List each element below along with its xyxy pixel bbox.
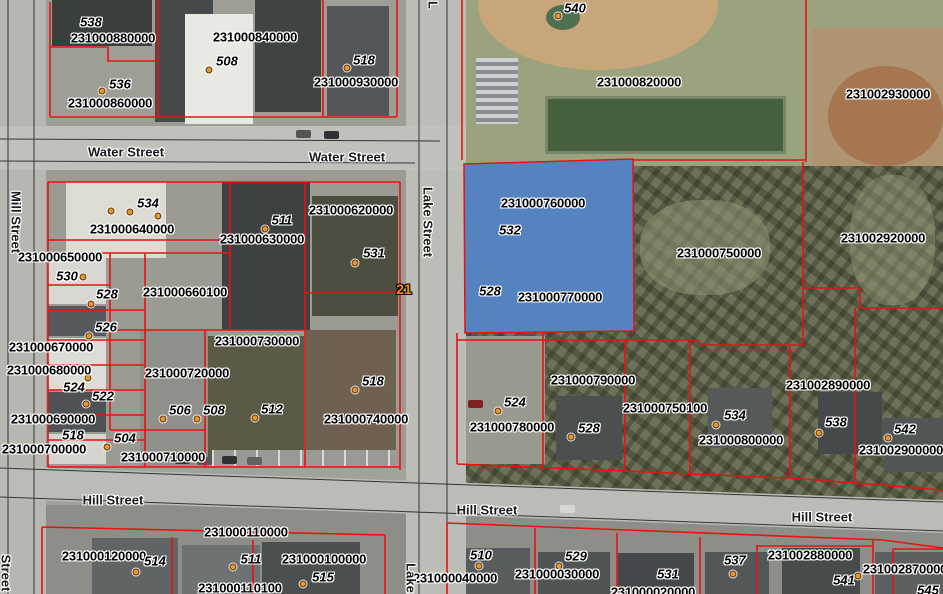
parcel-label-231000100000: 231000100000: [282, 552, 366, 567]
street-label-street: Street: [0, 555, 14, 592]
parcel-label-231000710000: 231000710000: [121, 450, 205, 465]
address-label-506: 506: [169, 403, 191, 418]
parcel-label-231000860000: 231000860000: [68, 96, 152, 111]
parcel-label-231000110000: 231000110000: [204, 525, 288, 540]
parcel-label-231002880000: 231002880000: [768, 548, 852, 563]
parcel-label-231000750100: 231000750100: [623, 401, 707, 416]
parcel-label-231000820000: 231000820000: [597, 75, 681, 90]
address-label-504: 504: [114, 431, 136, 446]
address-label-508: 508: [216, 54, 238, 69]
address-label-524: 524: [504, 395, 526, 410]
parcel-label-231000930000: 231000930000: [314, 75, 398, 90]
parcel-label-231000700000: 231000700000: [2, 442, 86, 457]
parcel-label-231000800000: 231000800000: [699, 433, 783, 448]
parcel-label-231000770000: 231000770000: [518, 290, 602, 305]
address-label-541: 541: [833, 573, 855, 588]
street-label-lake: Lake: [404, 563, 419, 593]
address-label-511: 511: [241, 552, 262, 567]
street-label-water-street: Water Street: [309, 150, 385, 165]
address-label-545: 545: [917, 583, 939, 594]
parcel-label-231000690000: 231000690000: [11, 412, 95, 427]
address-label-538: 538: [825, 415, 847, 430]
parcel-label-231000790000: 231000790000: [551, 373, 635, 388]
parcel-label-231000630000: 231000630000: [220, 232, 304, 247]
address-label-538: 538: [80, 15, 102, 30]
parcel-label-231000640000: 231000640000: [90, 222, 174, 237]
address-label-531: 531: [363, 246, 385, 261]
address-label-512: 512: [261, 402, 283, 417]
parcel-label-231000750000: 231000750000: [677, 246, 761, 261]
address-label-510: 510: [470, 548, 492, 563]
parcel-label-231000740000: 231000740000: [324, 412, 408, 427]
parcel-label-231002870000: 231002870000: [863, 562, 943, 577]
street-label-hill-street: Hill Street: [457, 503, 518, 518]
street-label-l: L: [426, 1, 441, 9]
parcel-label-231000730000: 231000730000: [215, 334, 299, 349]
address-label-528: 528: [479, 284, 501, 299]
address-label-526: 526: [95, 320, 117, 335]
parcel-label-231000030000: 231000030000: [515, 567, 599, 582]
address-label-518: 518: [362, 374, 384, 389]
address-label-531: 531: [657, 567, 679, 582]
address-label-515: 515: [312, 570, 334, 585]
street-label-water-street: Water Street: [88, 145, 164, 160]
parcel-label-231000760000: 231000760000: [501, 196, 585, 211]
address-label-542: 542: [894, 422, 916, 437]
parcel-label-231000720000: 231000720000: [145, 366, 229, 381]
parcel-label-231000620000: 231000620000: [309, 203, 393, 218]
address-label-528: 528: [96, 287, 118, 302]
address-label-536: 536: [109, 77, 131, 92]
parcel-label-231002890000: 231002890000: [786, 378, 870, 393]
address-label-508: 508: [203, 403, 225, 418]
parcel-label-231000660100: 231000660100: [143, 285, 227, 300]
parcel-label-231000880000: 231000880000: [71, 31, 155, 46]
address-label-537: 537: [724, 553, 746, 568]
parcel-label-231000650000: 231000650000: [18, 250, 102, 265]
address-label-534: 534: [137, 196, 159, 211]
address-label-524: 524: [63, 380, 85, 395]
street-label-mill-street: Mill Street: [9, 191, 24, 253]
street-label-hill-street: Hill Street: [792, 510, 853, 525]
address-label-532: 532: [499, 223, 521, 238]
address-label-529: 529: [565, 549, 587, 564]
address-label-518: 518: [62, 428, 84, 443]
address-label-528: 528: [578, 421, 600, 436]
parcel-label-231000780000: 231000780000: [470, 420, 554, 435]
map-canvas[interactable]: 2310008800002310008400002310009300002310…: [0, 0, 943, 594]
parcel-label-231000040000: 231000040000: [413, 571, 497, 586]
parcel-label-231002930000: 231002930000: [846, 87, 930, 102]
address-label-522: 522: [92, 389, 114, 404]
street-label-hill-street: Hill Street: [83, 493, 144, 508]
address-label-530: 530: [56, 269, 78, 284]
parcel-label-231002900000: 231002900000: [859, 443, 943, 458]
parcel-label-231000680000: 231000680000: [7, 363, 91, 378]
parcel-label-231000020000: 231000020000: [611, 585, 695, 594]
route-marker-21: 21: [396, 281, 412, 297]
parcel-label-231000670000: 231000670000: [9, 340, 93, 355]
parcel-label-231002920000: 231002920000: [841, 231, 925, 246]
address-label-518: 518: [353, 53, 375, 68]
address-label-534: 534: [724, 408, 746, 423]
address-label-511: 511: [272, 213, 293, 228]
street-label-lake-street: Lake Street: [421, 187, 436, 257]
parcel-label-231000840000: 231000840000: [213, 30, 297, 45]
address-label-514: 514: [144, 554, 166, 569]
parcel-label-231000110100: 231000110100: [198, 581, 282, 594]
map-label-layer: 2310008800002310008400002310009300002310…: [0, 0, 943, 594]
parcel-label-231000120000: 231000120000: [62, 549, 146, 564]
address-label-540: 540: [564, 1, 586, 16]
